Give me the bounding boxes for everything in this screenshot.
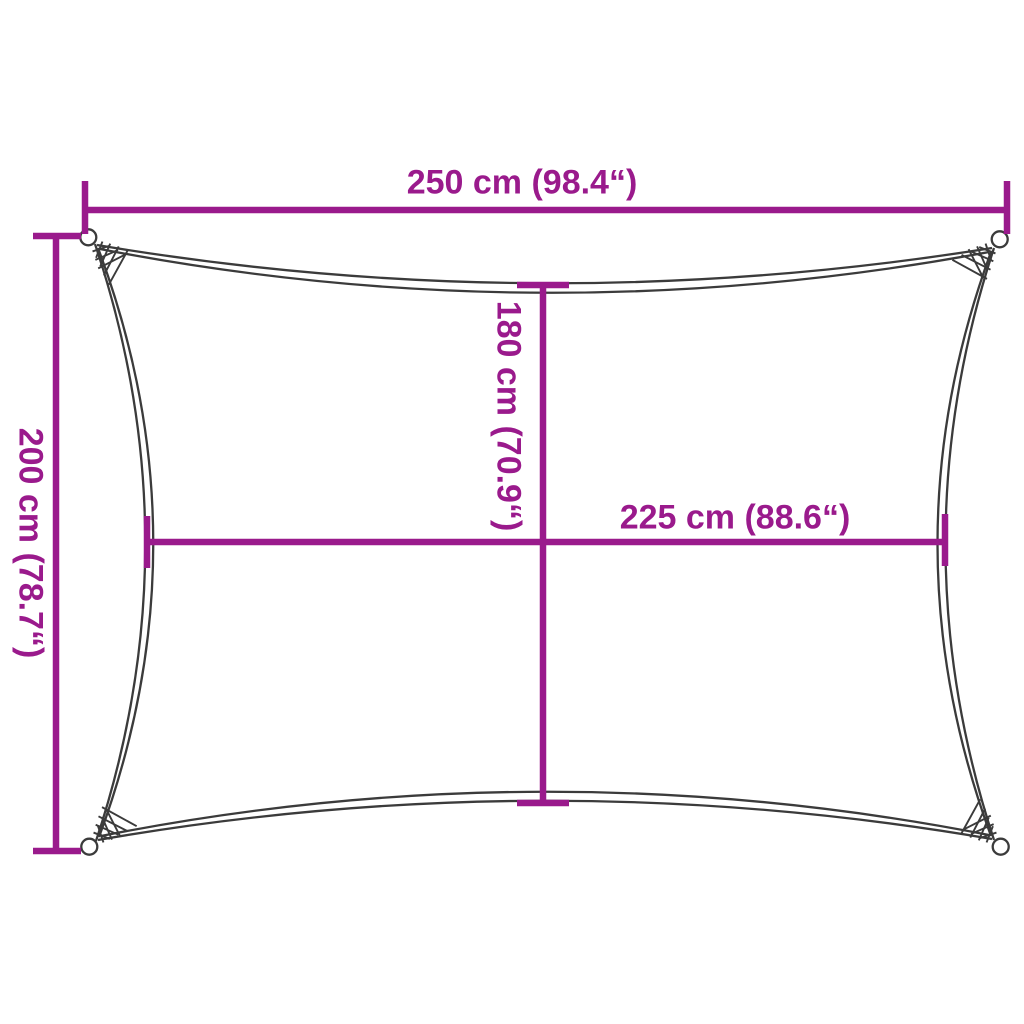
inner-width-label: 225 cm (88.6“) bbox=[620, 499, 851, 538]
corner-ring-top-left bbox=[69, 218, 135, 284]
corner-ring-bottom-left bbox=[70, 799, 136, 865]
dimension-diagram: 250 cm (98.4“) 200 cm (78.7“) 180 cm (70… bbox=[0, 0, 1024, 1024]
left-height-label: 200 cm (78.7“) bbox=[11, 428, 50, 659]
inner-height-label: 180 cm (70.9“) bbox=[489, 301, 528, 532]
top-width-label: 250 cm (98.4“) bbox=[407, 164, 638, 203]
corner-ring-bottom-right bbox=[953, 799, 1019, 865]
